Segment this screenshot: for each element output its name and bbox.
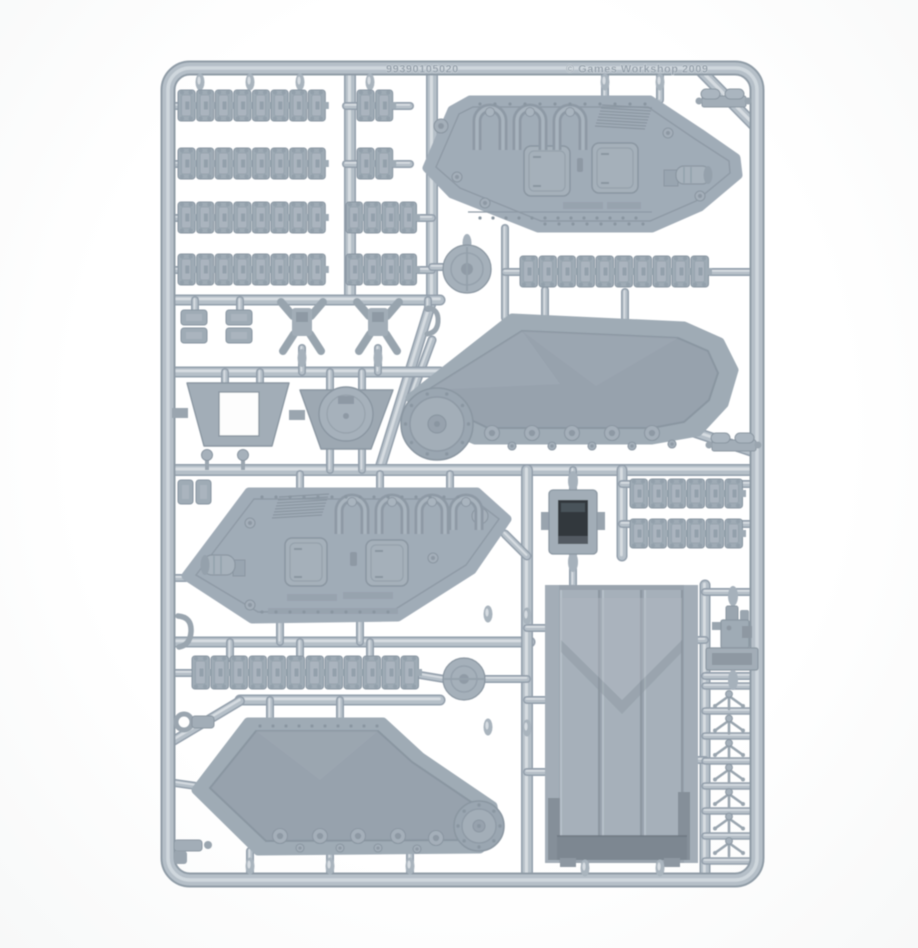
bolt-detail — [605, 426, 620, 441]
track-link-run — [630, 519, 746, 548]
runner-segment — [299, 641, 300, 658]
sprue-bud — [196, 74, 205, 91]
runner-segment — [709, 271, 752, 272]
door-handle-part — [713, 691, 745, 709]
drive-sprocket-mount — [357, 302, 399, 367]
track-link-run — [346, 202, 420, 233]
cylinder-bracket-part — [706, 433, 762, 451]
rivet-row — [260, 495, 459, 498]
small-track-piece — [178, 480, 211, 504]
mold-code-embossed-text: 99390105020 — [386, 64, 459, 76]
bolt-detail — [313, 829, 328, 844]
bolt-detail — [525, 426, 540, 441]
track-link-run — [357, 148, 396, 179]
runner-segment — [171, 641, 530, 642]
runner-segment — [697, 639, 705, 640]
hatch-door — [592, 143, 638, 193]
bolt-detail — [428, 553, 438, 563]
hatch-frame-part — [172, 383, 305, 446]
door-handle-part — [713, 740, 745, 758]
sprue-bud — [326, 858, 335, 875]
bolt-detail — [434, 119, 448, 133]
sprue-bud — [484, 719, 493, 736]
sprue-bud — [656, 74, 665, 91]
runner-segment — [526, 469, 527, 876]
runner-segment — [171, 469, 752, 470]
runner-segment — [704, 685, 752, 686]
runner-segment — [483, 678, 527, 679]
bolt-detail — [391, 829, 406, 844]
runner-segment — [704, 810, 752, 811]
bolt-detail — [413, 845, 421, 853]
track-housing-panel-left — [196, 722, 504, 851]
sprue-bud — [296, 74, 305, 91]
runner-segment — [329, 448, 330, 470]
runner-segment — [229, 641, 230, 658]
bolt-detail — [480, 198, 490, 208]
corner-bracket-part — [174, 840, 212, 864]
bolt-detail — [452, 172, 462, 182]
foot-plate — [563, 202, 603, 209]
runner-segment — [345, 163, 357, 164]
runner-segment — [194, 299, 195, 310]
runner-segment — [704, 785, 752, 786]
track-link-run — [346, 254, 420, 285]
bolt-detail — [588, 442, 596, 450]
bolt-detail — [245, 518, 255, 528]
hull-side-panel-left — [186, 492, 507, 619]
runner-segment — [704, 591, 752, 592]
hatch-door — [524, 146, 570, 196]
runner-segment — [361, 371, 362, 390]
hatch-door — [366, 540, 408, 586]
foot-plate — [287, 594, 337, 601]
bolt-detail — [628, 442, 636, 450]
track-link-run — [178, 254, 329, 285]
runner-segment — [239, 299, 240, 310]
drive-sprocket-mount — [281, 302, 323, 367]
sprue-bud — [581, 860, 590, 877]
sprue-bud — [366, 74, 375, 91]
sprue-frame-group: 99390105020 © Games Workshop 2009 — [167, 64, 761, 881]
door-latch — [350, 552, 357, 566]
assault-ramp-door — [545, 585, 698, 867]
runner-segment — [369, 641, 370, 658]
sprue-bud — [523, 608, 532, 625]
runner-segment — [544, 289, 545, 318]
runner-segment — [704, 860, 752, 861]
small-track-piece — [181, 310, 252, 343]
track-link-run — [630, 479, 746, 508]
runner-segment — [704, 760, 752, 761]
runner-segment — [704, 735, 752, 736]
door-handle-part — [713, 789, 745, 807]
runner-segment — [526, 699, 545, 700]
runner-segment — [704, 584, 705, 876]
bolt-detail — [695, 191, 705, 201]
track-link-run — [357, 90, 396, 121]
runner-segment — [526, 771, 545, 772]
hatch-door — [285, 538, 327, 586]
runner-segment — [504, 271, 520, 272]
bolt-detail — [429, 831, 444, 846]
sprue-bud — [523, 720, 532, 737]
runner-segment — [259, 371, 260, 383]
runner-segment — [704, 675, 752, 676]
runner-segment — [704, 835, 752, 836]
bolt-detail — [351, 829, 366, 844]
bolt-detail — [245, 600, 255, 610]
bolt-detail — [548, 442, 556, 450]
dome-hatch-part — [300, 387, 393, 449]
bolt-detail — [296, 844, 304, 852]
door-handle-part — [713, 813, 745, 831]
door-latch — [577, 158, 583, 172]
ring-bracket-part — [176, 714, 214, 730]
bolt-detail — [336, 844, 344, 852]
idler-wheel-disc — [443, 658, 485, 700]
runner-segment — [704, 710, 752, 711]
bolt-detail — [374, 844, 382, 852]
wheel-housing — [454, 801, 504, 851]
sprue-bud — [656, 860, 665, 877]
runner-segment — [621, 523, 630, 524]
door-handle-part — [713, 764, 745, 782]
runner-segment — [419, 674, 444, 679]
sprue-bud — [484, 606, 493, 623]
track-link-run — [520, 256, 712, 287]
track-link-run — [178, 202, 329, 233]
sprue-illustration: 99390105020 © Games Workshop 2009 — [0, 0, 918, 948]
bolt-detail — [485, 426, 500, 441]
bolt-detail — [668, 440, 676, 448]
runner-segment — [621, 483, 630, 484]
wheel-housing — [401, 388, 473, 460]
runner-segment — [361, 448, 362, 470]
idler-wheel-disc — [443, 234, 491, 293]
sprue-bud — [246, 74, 255, 91]
sprue-bud — [406, 858, 415, 875]
bolt-detail — [645, 426, 660, 441]
copyright-embossed-text: © Games Workshop 2009 — [566, 64, 709, 76]
track-link-run — [178, 90, 329, 121]
door-handle-part — [713, 715, 745, 733]
door-handle-part — [713, 838, 745, 856]
runner-segment — [224, 371, 225, 383]
hatch-housing-box — [541, 471, 605, 572]
bolt-detail — [273, 829, 288, 844]
runner-segment — [329, 371, 330, 390]
foot-plate — [607, 202, 641, 209]
runner-segment — [345, 105, 357, 106]
bolt-detail — [663, 128, 673, 138]
sprue-bud — [246, 858, 255, 875]
runner-segment — [526, 627, 545, 628]
track-link-run — [192, 656, 422, 689]
bolt-detail — [565, 426, 580, 441]
track-link-run — [178, 148, 329, 179]
sprue-bud — [601, 74, 610, 91]
sprue-product-photo: 99390105020 © Games Workshop 2009 — [0, 0, 918, 948]
bolt-detail — [508, 442, 516, 450]
foot-plate — [343, 592, 393, 599]
